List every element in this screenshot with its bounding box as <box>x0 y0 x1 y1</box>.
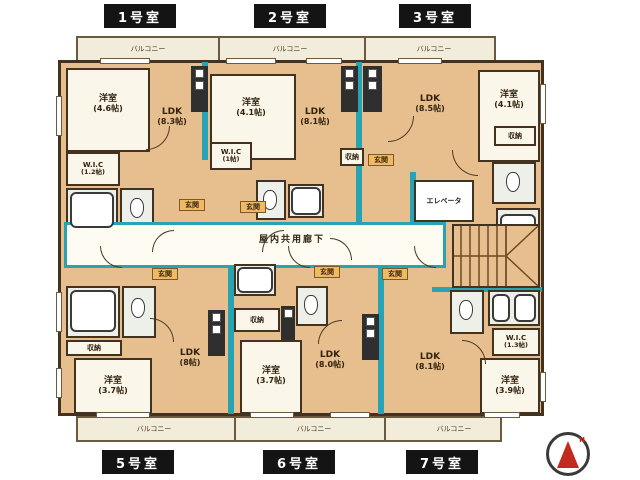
unit-tag-7: 7号室 <box>406 450 478 474</box>
unit-tag-2: 2号室 <box>254 4 326 28</box>
u3-ldk-label: LDK(8.5帖) <box>415 94 444 114</box>
balcony-divider <box>364 38 366 60</box>
window-icon <box>100 58 150 64</box>
window-icon <box>540 84 546 124</box>
floor-plan-page: 1号室 2号室 3号室 5号室 6号室 7号室 バルコニー バルコニー バルコニ… <box>0 0 640 480</box>
u5-bathtub-icon <box>70 290 116 332</box>
window-icon <box>56 292 62 332</box>
window-icon <box>56 96 62 136</box>
entrance-label: 玄関 <box>314 266 340 278</box>
u7-wic-label: W.I.C(1.3帖) <box>504 334 528 350</box>
u1-ldk-label: LDK(8.3帖) <box>157 107 186 127</box>
u5-bedroom-label: 洋室(3.7帖) <box>98 376 127 396</box>
balcony-divider <box>384 418 386 440</box>
u1-bathtub-icon <box>70 192 114 228</box>
u6-storage: 収納 <box>234 308 280 332</box>
window-icon <box>96 412 150 418</box>
u3-bedroom-label: 洋室(4.1帖) <box>494 90 523 110</box>
unit-tag-3: 3号室 <box>399 4 471 28</box>
u2-bathtub-icon <box>291 187 321 215</box>
window-icon <box>330 412 370 418</box>
u2-bedroom-label: 洋室(4.1帖) <box>236 98 265 118</box>
balcony-label: バルコニー <box>137 424 172 434</box>
u3-storage: 収納 <box>494 126 536 146</box>
u2-ldk-label: LDK(8.1帖) <box>300 107 329 127</box>
u5-ldk-label: LDK(8帖) <box>180 348 201 368</box>
u6-toilet-icon <box>304 295 318 315</box>
window-icon <box>540 372 546 402</box>
window-icon <box>56 368 62 398</box>
balcony-label: バルコニー <box>131 44 166 54</box>
u6-bathtub-icon <box>237 267 273 293</box>
elevator: エレベータ <box>414 180 474 222</box>
u3-kitchen-icon <box>363 66 382 112</box>
u3-bedroom <box>478 70 540 162</box>
unit-tag-1: 1号室 <box>104 4 176 28</box>
balcony-label: バルコニー <box>437 424 472 434</box>
u7-kitchen-icon <box>362 314 379 360</box>
u2-wic-label: W.I.C(1帖) <box>221 148 241 164</box>
balcony-label: バルコニー <box>297 424 332 434</box>
u7-toilet-icon <box>459 300 473 320</box>
north-compass-icon: N <box>546 432 590 476</box>
window-icon <box>250 412 294 418</box>
balcony-divider <box>234 418 236 440</box>
entrance-label: 玄関 <box>240 201 266 213</box>
u3-entry-storage: 収納 <box>340 148 364 166</box>
u7-bedroom-label: 洋室(3.9帖) <box>495 376 524 396</box>
compass-needle-icon <box>557 441 579 468</box>
u5-toilet-icon <box>131 298 145 318</box>
u1-bedroom-label: 洋室(4.6帖) <box>93 94 122 114</box>
u5-storage: 収納 <box>66 340 122 356</box>
compass-north-letter: N <box>579 436 585 444</box>
u1-kitchen-icon <box>191 66 208 112</box>
entrance-label: 玄関 <box>179 199 205 211</box>
entrance-label: 玄関 <box>382 268 408 280</box>
balcony-divider <box>218 38 220 60</box>
entrance-label: 玄関 <box>368 154 394 166</box>
u1-wic-label: W.I.C(1.2帖) <box>81 161 105 177</box>
balcony-bottom: バルコニー バルコニー バルコニー <box>76 416 502 442</box>
window-icon <box>226 58 276 64</box>
entrance-label: 玄関 <box>152 268 178 280</box>
u6-bedroom-label: 洋室(3.7帖) <box>256 366 285 386</box>
window-icon <box>484 412 520 418</box>
balcony-label: バルコニー <box>273 44 308 54</box>
u7-ldk-label: LDK(8.1帖) <box>415 352 444 372</box>
u6-ldk-label: LDK(8.0帖) <box>315 350 344 370</box>
u5-kitchen-icon <box>208 310 225 356</box>
u7-bathtub-icon <box>514 294 536 322</box>
u1-toilet-icon <box>130 198 144 218</box>
u2-kitchen-icon <box>341 66 358 112</box>
u3-toilet-icon <box>506 172 520 192</box>
window-icon <box>306 58 342 64</box>
unit-tag-5: 5号室 <box>102 450 174 474</box>
unit-tag-6: 6号室 <box>263 450 335 474</box>
u6-kitchen-icon <box>281 306 295 340</box>
balcony-label: バルコニー <box>417 44 452 54</box>
stairs <box>452 224 540 288</box>
u7-shower-icon <box>492 294 510 322</box>
window-icon <box>398 58 442 64</box>
